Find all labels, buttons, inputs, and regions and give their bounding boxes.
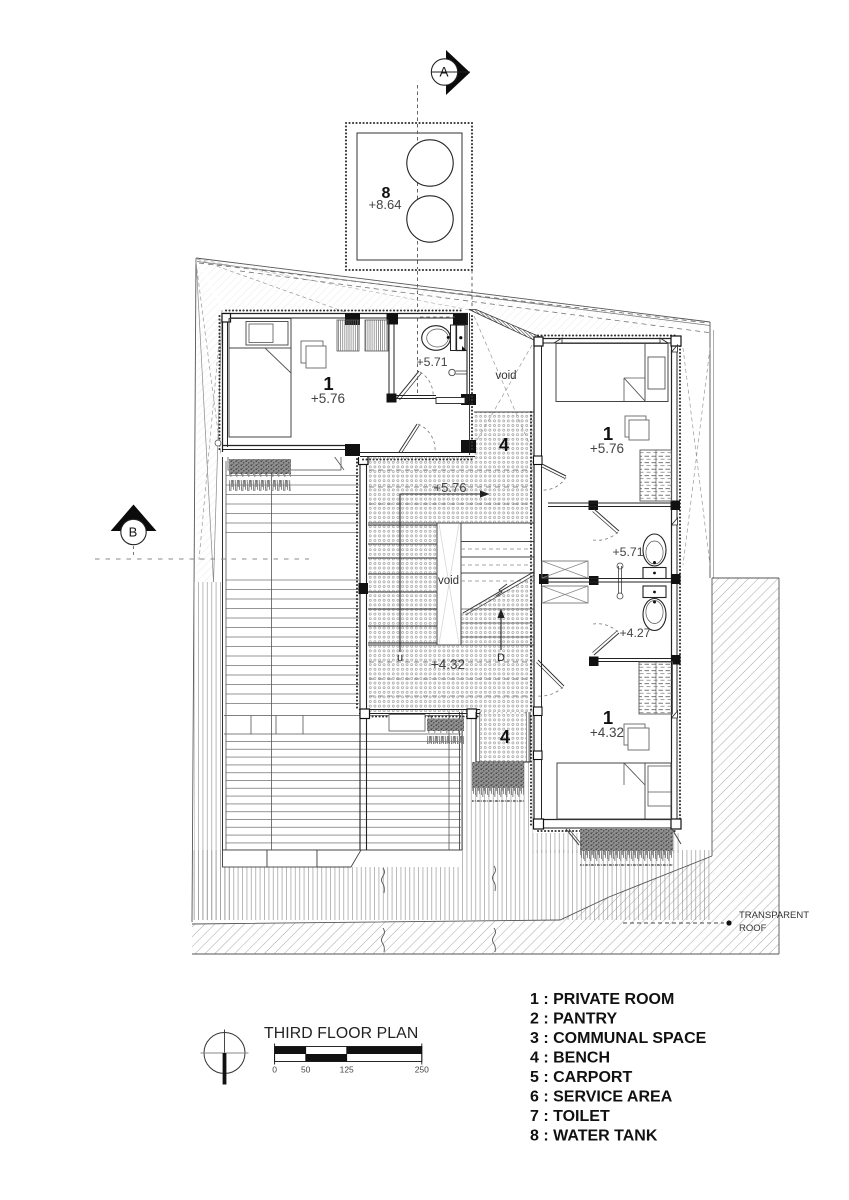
svg-text:125: 125 bbox=[340, 1065, 354, 1075]
svg-text:void: void bbox=[495, 370, 516, 382]
svg-text:1 : PRIVATE ROOM: 1 : PRIVATE ROOM bbox=[530, 991, 674, 1008]
svg-text:D: D bbox=[497, 652, 505, 664]
svg-text:6 : SERVICE AREA: 6 : SERVICE AREA bbox=[530, 1089, 673, 1106]
svg-text:void: void bbox=[438, 575, 459, 587]
svg-text:u: u bbox=[397, 652, 403, 664]
svg-text:3 : COMMUNAL SPACE: 3 : COMMUNAL SPACE bbox=[530, 1030, 707, 1047]
svg-text:+5.76: +5.76 bbox=[590, 441, 624, 456]
svg-text:7 : TOILET: 7 : TOILET bbox=[530, 1108, 610, 1125]
svg-text:+8.64: +8.64 bbox=[369, 197, 402, 212]
svg-text:B: B bbox=[129, 525, 138, 540]
svg-text:+4.32: +4.32 bbox=[431, 657, 465, 672]
svg-text:+5.76: +5.76 bbox=[311, 391, 345, 406]
svg-text:4: 4 bbox=[499, 435, 509, 455]
svg-text:+4.32: +4.32 bbox=[590, 725, 624, 740]
svg-text:8 : WATER TANK: 8 : WATER TANK bbox=[530, 1128, 658, 1145]
svg-text:0: 0 bbox=[272, 1065, 277, 1075]
svg-text:250: 250 bbox=[415, 1065, 429, 1075]
svg-text:TRANSPARENT: TRANSPARENT bbox=[739, 910, 809, 921]
svg-text:+5.71: +5.71 bbox=[612, 545, 643, 559]
svg-text:+4.27: +4.27 bbox=[619, 626, 650, 640]
svg-text:4 : BENCH: 4 : BENCH bbox=[530, 1050, 610, 1067]
svg-text:ROOF: ROOF bbox=[739, 923, 767, 934]
svg-text:5 : CARPORT: 5 : CARPORT bbox=[530, 1069, 632, 1086]
svg-text:THIRD FLOOR PLAN: THIRD FLOOR PLAN bbox=[264, 1025, 418, 1042]
svg-text:+5.76: +5.76 bbox=[434, 480, 467, 495]
svg-text:2 : PANTRY: 2 : PANTRY bbox=[530, 1011, 617, 1028]
svg-text:A: A bbox=[439, 65, 448, 80]
svg-text:+5.71: +5.71 bbox=[416, 355, 447, 369]
svg-text:50: 50 bbox=[301, 1065, 311, 1075]
svg-text:4: 4 bbox=[500, 727, 510, 747]
